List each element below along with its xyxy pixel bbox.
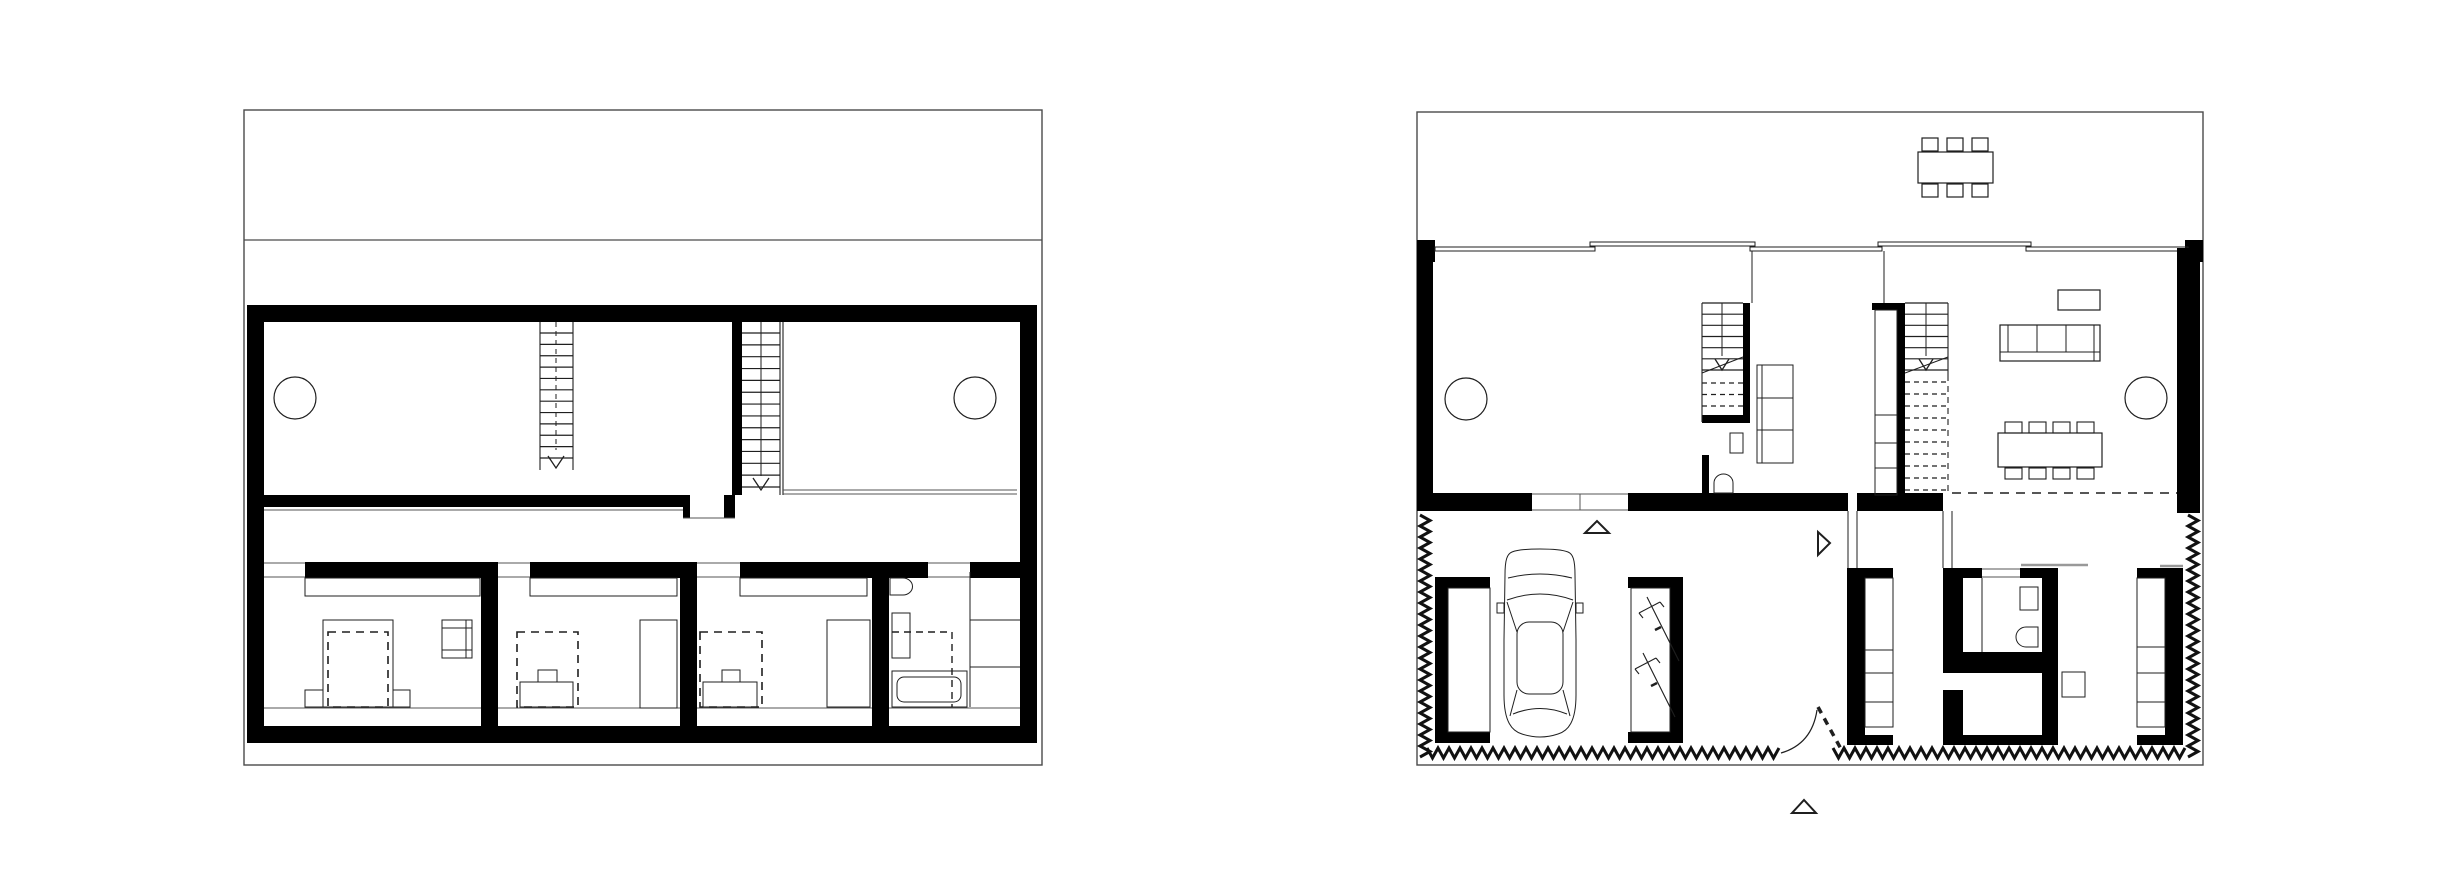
floor-plans-canvas	[0, 0, 2450, 875]
floor-plan-drawing	[0, 0, 2450, 875]
